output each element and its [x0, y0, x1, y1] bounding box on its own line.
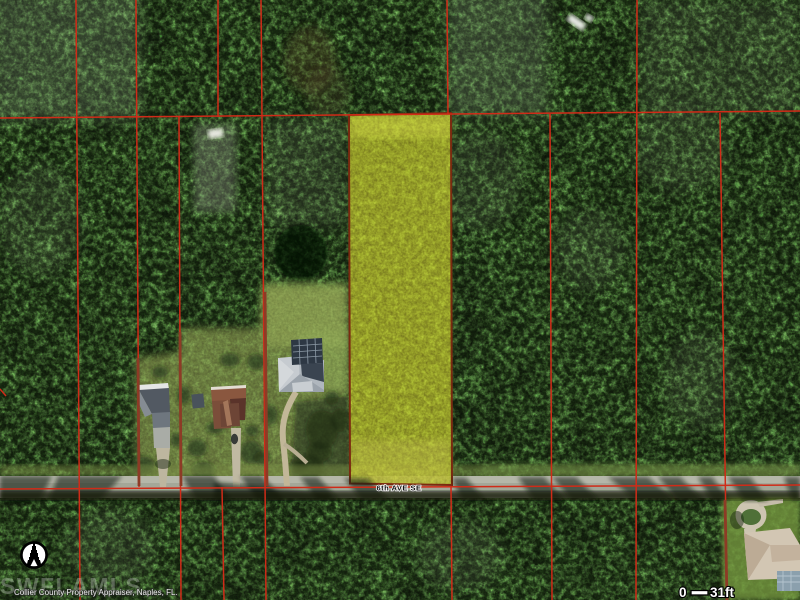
- svg-text:6th AVE SE: 6th AVE SE: [376, 484, 421, 493]
- svg-text:Collier County Property Apprai: Collier County Property Appraiser, Naple…: [14, 588, 178, 597]
- svg-text:31ft: 31ft: [710, 585, 735, 600]
- svg-text:0: 0: [679, 585, 687, 600]
